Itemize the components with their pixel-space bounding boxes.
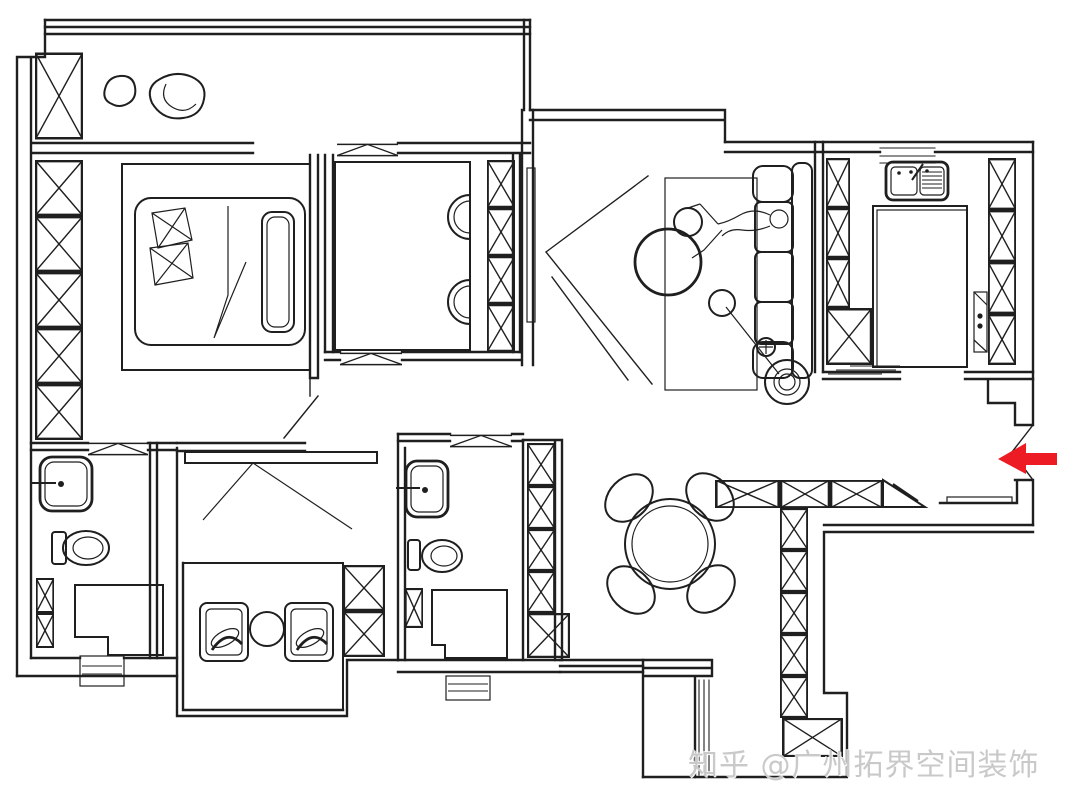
hob-panel (974, 292, 987, 352)
watermark-text: 知乎 @广州拓界空间装饰 (688, 740, 1040, 784)
headboard (185, 452, 377, 463)
lamp-shade (709, 290, 735, 316)
study-chairs (448, 195, 470, 324)
sofa (753, 163, 812, 378)
person-lying (688, 204, 788, 258)
rug (665, 178, 757, 390)
bed-fold-lines (203, 463, 352, 529)
side-table (757, 338, 775, 356)
bathroom-ensuite (31, 457, 163, 686)
step-2 (446, 676, 490, 700)
dining-table (625, 499, 715, 589)
kitchen-sink (886, 162, 948, 200)
kitchen-cabinet-right (989, 159, 1016, 364)
dining-set (596, 464, 744, 623)
tatami-platform (183, 563, 343, 710)
floor-plan-drawing (0, 0, 1080, 800)
coffee-table-large (635, 229, 701, 295)
tatami-cabinet (344, 566, 384, 656)
toilet-1 (52, 531, 109, 565)
step-1 (80, 656, 124, 686)
toilet-2 (408, 540, 462, 572)
shower-2 (432, 590, 507, 658)
balcony-cabinet (36, 54, 82, 138)
kitchen-cabinet-left (826, 159, 871, 364)
door-swing-lines (284, 176, 1033, 480)
tatami-armchair-2 (285, 603, 333, 661)
study-cabinet (488, 161, 515, 351)
bathroom-2 (396, 461, 507, 700)
kitchen-island (873, 206, 967, 367)
dining-chairs (596, 464, 744, 623)
kitchen (828, 162, 987, 374)
master-wardrobe (36, 161, 82, 439)
study-desk (335, 162, 470, 350)
coffee-table-small (674, 208, 702, 236)
tea-table (250, 612, 284, 646)
balcony-plants (104, 74, 204, 118)
pillows (150, 208, 193, 285)
basin-1 (31, 457, 92, 511)
tatami-armchair-1 (200, 603, 248, 661)
entry-cabinet-run (716, 480, 925, 756)
living-room (635, 163, 812, 404)
entrance-arrow-icon (998, 443, 1057, 474)
master-bed (122, 164, 310, 370)
outer-walls (17, 20, 1033, 777)
floor-plan-canvas: 知乎 @广州拓界空间装饰 (0, 0, 1080, 800)
